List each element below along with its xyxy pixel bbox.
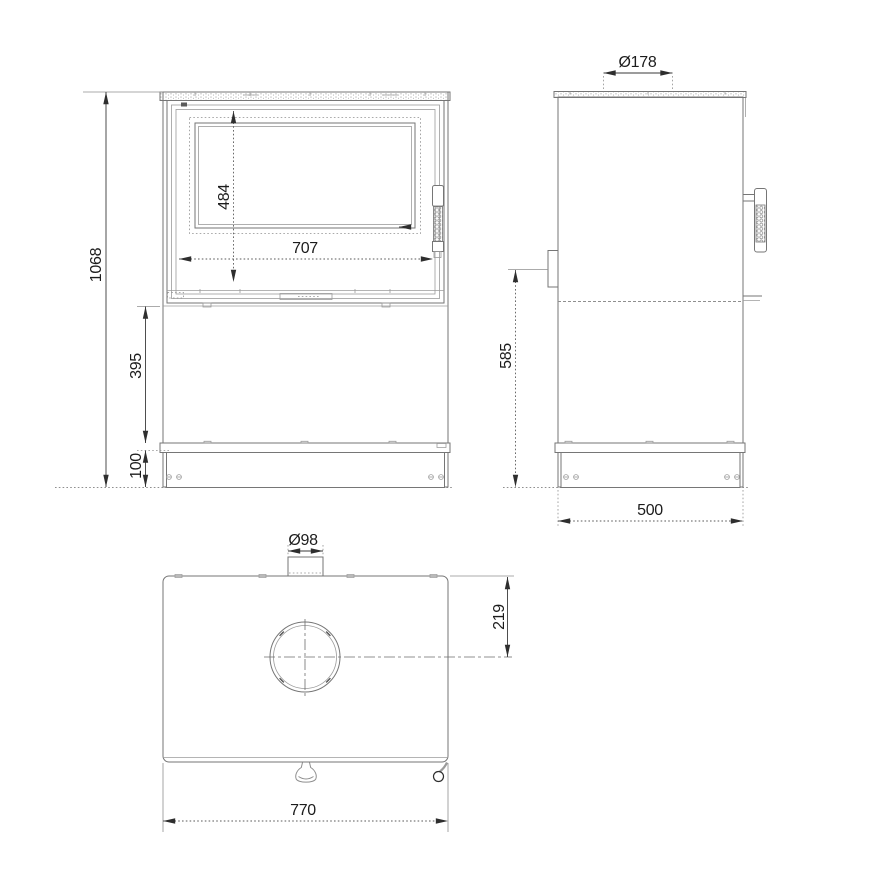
- dimension-label: 500: [637, 502, 663, 519]
- dimension-label: Ø98: [288, 532, 318, 549]
- drawing-canvas: 1068 484 707 395 100: [0, 0, 880, 880]
- hinge-detail: [181, 103, 187, 107]
- dim-flue-diameter: Ø178: [604, 54, 673, 92]
- handle-knurl: [434, 206, 443, 242]
- stove-body-side: [558, 97, 743, 487]
- top-plate-front: [160, 92, 450, 101]
- dimension-label: 484: [216, 184, 233, 210]
- dimension-label: 770: [290, 802, 316, 819]
- dim-flue-center-offset: 219: [450, 576, 514, 657]
- shelf-ledge-front: [160, 443, 450, 453]
- dimension-label: 100: [128, 453, 145, 479]
- plinth-side: [561, 453, 740, 488]
- dimension-label: Ø178: [619, 54, 657, 71]
- damper-knob-top: [434, 772, 444, 782]
- dimension-label: 395: [128, 353, 145, 379]
- top-plate-side: [554, 92, 746, 98]
- rear-air-outlet-side: [548, 251, 558, 288]
- door-handle-side: [743, 189, 767, 253]
- dim-width: 770: [163, 763, 448, 832]
- side-view: Ø178 585 500: [498, 54, 767, 526]
- plinth-front: [167, 453, 445, 488]
- top-view: Ø98 219 770: [163, 532, 514, 832]
- dim-storage-height: 395: [128, 307, 160, 444]
- dimension-label: 585: [498, 343, 515, 369]
- stove-body-top: [163, 576, 448, 762]
- dim-rear-outlet-diameter: Ø98: [288, 532, 323, 557]
- damper-rod-top: [440, 763, 447, 772]
- dimension-label: 219: [491, 604, 508, 630]
- dim-depth: 500: [558, 490, 743, 526]
- stove-body-front: [163, 92, 448, 487]
- dim-overall-height: 1068: [83, 92, 163, 487]
- handle-knurl: [756, 205, 765, 242]
- door-handle-front: [433, 186, 444, 258]
- dim-rear-outlet-height: 585: [498, 270, 548, 488]
- door-handle-top: [296, 763, 317, 783]
- dimension-label: 1068: [88, 247, 105, 282]
- handle-arm: [743, 195, 756, 202]
- handle-top-cap: [433, 186, 444, 207]
- handle-bottom-cap: [433, 242, 444, 252]
- shelf-ledge-side: [555, 443, 745, 453]
- drawing-page: 1068 484 707 395 100: [0, 0, 880, 880]
- dimension-label: 707: [292, 240, 318, 257]
- front-view: 1068 484 707 395 100: [55, 92, 452, 488]
